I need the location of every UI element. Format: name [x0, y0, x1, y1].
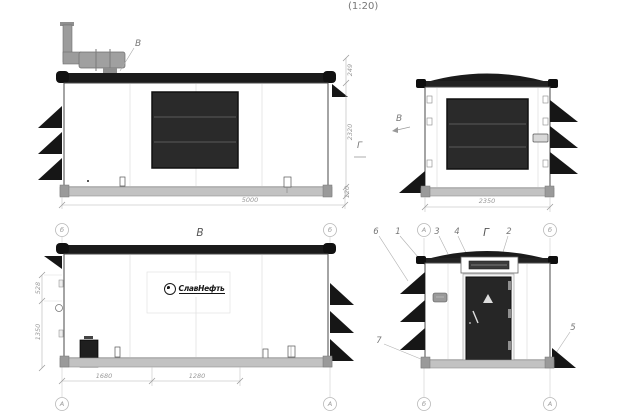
grid-bubble-label: б — [328, 226, 332, 234]
base-corner-fitting — [421, 186, 430, 197]
wall-knob — [56, 305, 63, 312]
grid-bubble-label: А — [548, 400, 552, 408]
door-hinge — [508, 341, 511, 350]
louver-panel — [447, 99, 528, 169]
dim-base-height: 120 — [343, 186, 351, 198]
base-frame — [421, 188, 554, 196]
corner-clamp — [427, 96, 432, 103]
cabinet-vent — [84, 336, 93, 339]
louver-hood-triangle — [38, 132, 62, 154]
door-hinge — [508, 281, 511, 290]
grid-bubble-label: А — [328, 400, 332, 408]
roof-eave-bar — [417, 81, 557, 87]
base-frame — [60, 187, 332, 196]
brand-logo-text: СлавНефть — [179, 284, 225, 294]
louver-hood-triangle — [330, 311, 354, 333]
leader-line — [439, 236, 448, 254]
exhaust-silencer — [79, 52, 125, 68]
louver-panel — [152, 92, 238, 168]
door-keyhole — [469, 322, 471, 324]
corner-clamp — [543, 160, 548, 167]
louver-hood-triangle — [400, 272, 425, 294]
dim-1280: 1280 — [189, 372, 206, 380]
grid-bubble-label: б — [60, 226, 64, 234]
louver-hood-triangle — [400, 328, 425, 350]
callout-6: 6 — [373, 227, 378, 237]
grid-bubble-label: б — [422, 400, 426, 408]
corner-clamp — [427, 118, 432, 125]
louver-hood-triangle — [38, 158, 62, 180]
base-corner-fitting — [421, 357, 430, 368]
view-arrow-head — [392, 127, 398, 133]
door-hinge — [508, 309, 511, 318]
drawing-sheet: (1:20) В Г 5000 249 2320 120 В 2350 В б … — [0, 0, 630, 420]
hinge-tab — [59, 280, 63, 287]
dim-roof-height: 249 — [346, 64, 354, 76]
callout-1: 1 — [395, 227, 400, 237]
dim-body-height: 2320 — [346, 124, 354, 141]
louver-hood-triangle — [330, 283, 354, 305]
view-g-title: Г — [483, 227, 489, 239]
base-corner-fitting — [545, 186, 554, 197]
section-mark-label: Г — [357, 141, 362, 151]
dim-width-2350: 2350 — [479, 197, 496, 205]
callout-2: 2 — [506, 227, 511, 237]
louver-hood-triangle — [400, 300, 425, 322]
view-arrow-line — [397, 127, 410, 130]
leader-line — [379, 236, 408, 281]
wall-dot — [87, 180, 89, 182]
grid-bubble-label: А — [60, 400, 64, 408]
louver-hood-triangle — [38, 106, 62, 128]
side-view-a — [38, 22, 366, 209]
base-corner-fitting — [323, 356, 332, 367]
exhaust-callout-label: В — [135, 39, 141, 49]
wall-fixture — [263, 349, 268, 358]
base-frame — [60, 358, 332, 367]
roof-corner-cap — [56, 243, 69, 254]
callout-5: 5 — [570, 323, 575, 333]
base-corner-fitting — [60, 356, 69, 367]
hinge-tab — [59, 330, 63, 337]
dim-1350: 1350 — [34, 324, 42, 341]
silencer-mount — [103, 68, 117, 73]
view-direction-label: В — [396, 114, 402, 124]
end-view-rear — [392, 74, 578, 213]
grid-bubble-label: А — [422, 226, 426, 234]
roof-band — [60, 245, 332, 254]
callout-3: 3 — [434, 227, 439, 237]
roof-corner-cap — [323, 243, 336, 254]
corner-clamp — [543, 96, 548, 103]
wall-fixture — [284, 177, 291, 187]
exhaust-elbow — [63, 52, 81, 64]
roof-band — [60, 73, 332, 83]
dim-1680: 1680 — [96, 372, 113, 380]
panel-latch — [533, 134, 548, 142]
base-frame — [421, 360, 554, 368]
wall-fixture — [115, 347, 120, 357]
view-b-title: В — [196, 227, 203, 239]
roof-corner-cap — [323, 71, 336, 83]
callout-7: 7 — [376, 336, 381, 346]
dim-width-5000: 5000 — [242, 196, 259, 204]
dim-528: 528 — [34, 282, 42, 294]
wall-fixture — [288, 346, 295, 357]
wall-fixture — [120, 177, 125, 186]
side-view-b — [39, 224, 354, 411]
drawing-linework — [0, 0, 630, 420]
roof-corner-cap — [56, 71, 69, 83]
drawing-scale-note: (1:20) — [348, 1, 378, 12]
step-wedge — [552, 348, 576, 368]
base-corner-fitting — [323, 185, 332, 197]
base-corner-fitting — [545, 357, 554, 368]
base-corner-fitting — [60, 185, 69, 197]
louver-hood-triangle — [44, 256, 62, 269]
callout-4: 4 — [454, 227, 459, 237]
brand-logo: СлавНефть — [163, 280, 225, 297]
wall-grille — [433, 293, 447, 302]
leader-line — [556, 332, 570, 353]
corner-clamp — [543, 118, 548, 125]
entrance-door — [466, 277, 511, 360]
grid-bubble-label: б — [548, 226, 552, 234]
louver-hood-triangle — [550, 126, 578, 148]
louver-hood-triangle — [332, 84, 348, 97]
end-view-door — [379, 224, 576, 411]
corner-clamp — [427, 160, 432, 167]
brand-logo-icon — [164, 283, 176, 295]
louver-hood-triangle — [330, 339, 354, 361]
louver-hood-triangle — [550, 152, 578, 174]
louver-hood-triangle — [550, 100, 578, 122]
